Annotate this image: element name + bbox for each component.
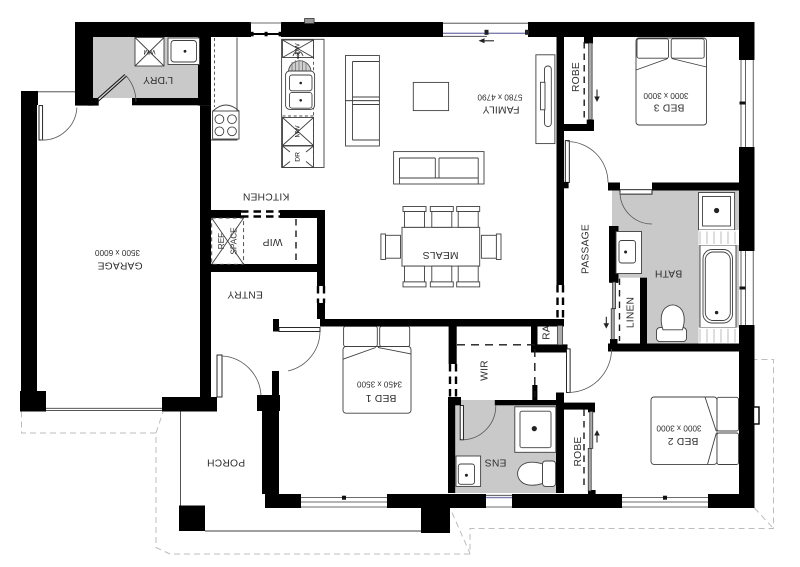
svg-text:SPACE: SPACE <box>230 227 239 255</box>
svg-text:RA: RA <box>542 325 553 340</box>
svg-text:REF: REF <box>217 233 226 249</box>
svg-text:BED 2: BED 2 <box>668 435 699 446</box>
svg-text:ENS: ENS <box>485 457 507 468</box>
svg-text:PASSAGE: PASSAGE <box>581 224 592 274</box>
svg-text:3000 x 3000: 3000 x 3000 <box>656 424 702 433</box>
svg-text:5780 x 4790: 5780 x 4790 <box>477 92 523 101</box>
svg-text:WIP: WIP <box>262 236 282 247</box>
svg-text:WIR: WIR <box>480 360 491 381</box>
svg-text:3000 x 3000: 3000 x 3000 <box>643 91 689 100</box>
svg-text:LINEN: LINEN <box>626 297 637 328</box>
svg-text:GARAGE: GARAGE <box>97 260 142 271</box>
svg-text:L'DRY: L'DRY <box>143 74 173 85</box>
svg-text:BED 3: BED 3 <box>654 101 685 112</box>
svg-text:ENTRY: ENTRY <box>227 289 263 300</box>
svg-text:BATH: BATH <box>655 267 683 278</box>
svg-text:3500 x 6000: 3500 x 6000 <box>95 248 141 257</box>
svg-text:DW: DW <box>294 43 301 55</box>
svg-text:FAMILY: FAMILY <box>482 103 519 114</box>
svg-text:ROBE: ROBE <box>571 62 582 92</box>
svg-text:DR: DR <box>295 152 302 162</box>
svg-text:ROBE: ROBE <box>573 437 584 467</box>
svg-text:MW: MW <box>295 125 302 138</box>
svg-text:MEALS: MEALS <box>423 249 459 260</box>
svg-text:BED 1: BED 1 <box>366 392 397 403</box>
svg-text:WM: WM <box>143 48 155 55</box>
svg-text:KITCHEN: KITCHEN <box>243 191 290 202</box>
svg-text:PORCH: PORCH <box>207 457 245 468</box>
svg-text:3450 x 3500: 3450 x 3500 <box>357 379 403 388</box>
